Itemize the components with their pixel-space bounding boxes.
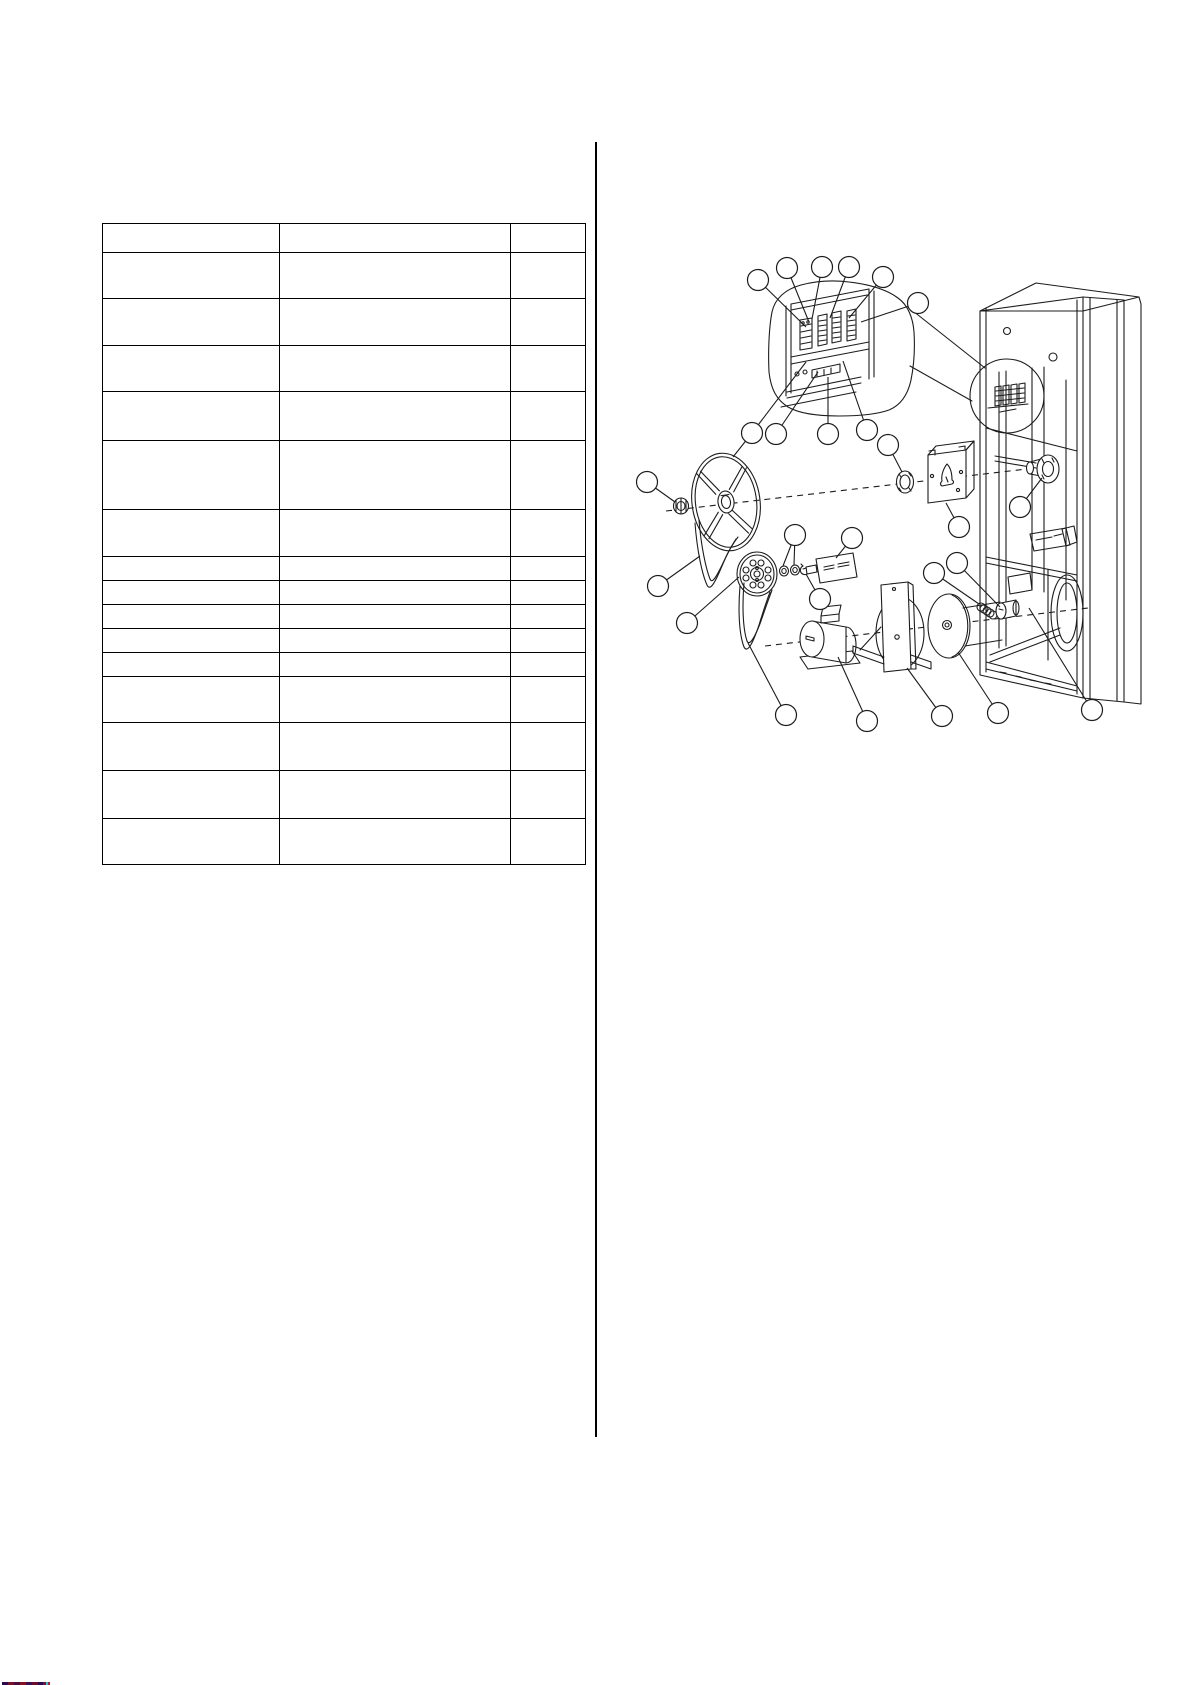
mounting-hole [1004,328,1011,335]
bracket-foot [853,646,884,664]
callout-balloon [1010,497,1031,518]
callout-leader-line [748,643,786,715]
callout-balloon [873,267,894,288]
callout-balloon [839,257,860,278]
hex-nut [674,498,689,514]
bracket-plate [881,582,911,672]
roller-cylinder [996,600,1019,619]
callout-balloon [857,420,878,441]
callout-balloon [988,703,1009,724]
callout-leader-line [752,362,806,433]
callout-balloon [766,424,787,445]
callout-balloon [748,270,769,291]
shaft-flange-bushing [1027,455,1060,483]
detail-link-line [910,366,972,401]
callout-balloon [777,258,798,279]
detail-source-circle [970,359,1044,433]
washers [780,565,800,576]
callout-balloon [857,711,878,732]
manual-page [0,0,1192,1685]
motor [800,605,860,669]
callout-balloon [810,589,831,610]
micro-switch-box [928,441,974,503]
callout-balloon [947,553,968,574]
pulley-bracket-assembly [853,582,931,672]
grommet-bushing [897,471,914,493]
callout-balloon [776,705,797,726]
callout-balloon [1082,700,1103,721]
callout-balloon [878,435,899,456]
callout-balloon [924,563,945,584]
detail-link-line [913,311,985,368]
drive-disc [928,594,1002,658]
callout-balloon [812,257,833,278]
cabinet-door-panel [1083,297,1141,704]
callout-balloon [818,424,839,445]
callout-balloon [637,472,658,493]
callout-balloon [742,423,763,444]
callout-balloon [842,528,863,549]
callout-balloon [785,525,806,546]
callout-balloon [932,706,953,727]
callout-balloon [677,613,698,634]
exploded-view-diagram [0,0,1192,1685]
v-belt-primary [695,520,738,587]
callout-balloon [908,293,929,314]
mounting-hole [1049,353,1057,361]
shaft-key-plate [803,553,857,583]
handwheel [686,449,767,556]
callout-balloon [949,517,970,538]
cabinet-interior [986,328,1083,687]
callout-balloon [648,576,669,597]
